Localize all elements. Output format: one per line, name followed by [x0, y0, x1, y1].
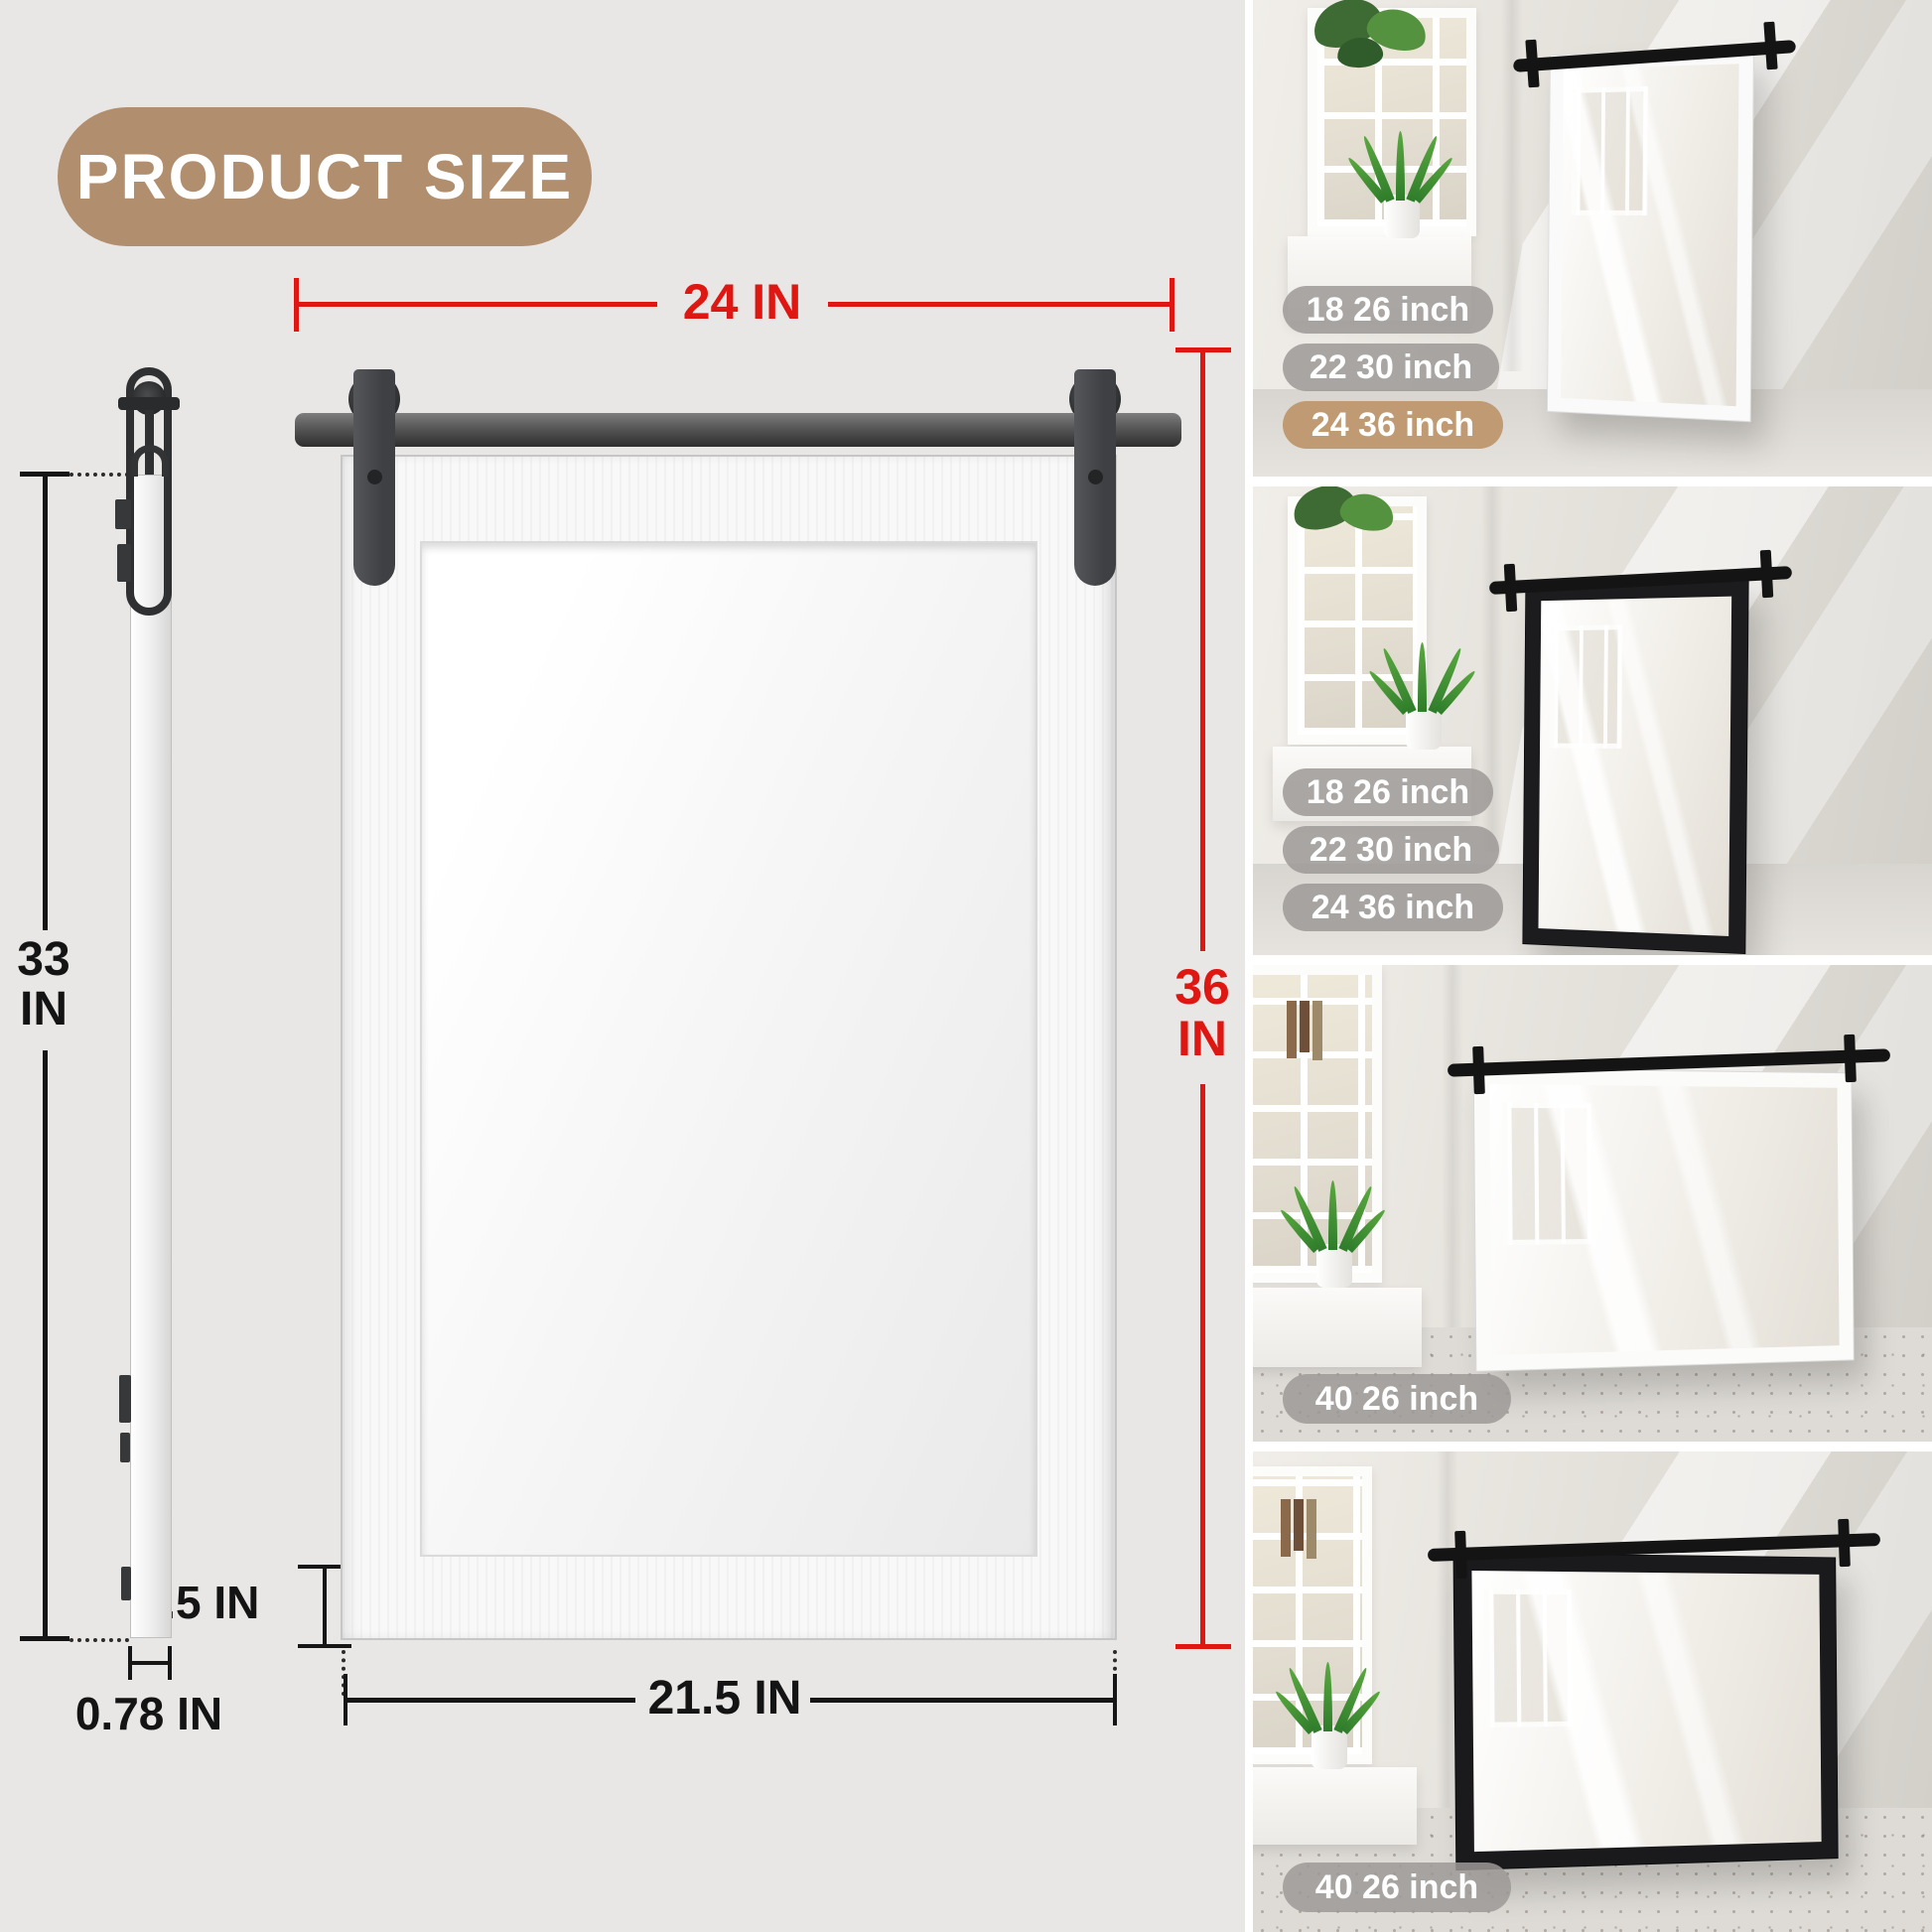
front-barn-door-rail	[295, 413, 1181, 447]
size-badge: 18 26 inch	[1283, 768, 1493, 816]
dim-33in-tick-bottom	[20, 1636, 69, 1641]
product-photo-black-vertical: 18 26 inch 22 30 inch 24 36 inch	[1253, 486, 1932, 955]
size-badge: 40 26 inch	[1283, 1374, 1511, 1424]
front-view-mirror-glass	[420, 541, 1037, 1557]
size-badge: 18 26 inch	[1283, 286, 1493, 334]
photo-shelf-books-icon	[1281, 1499, 1316, 1559]
dim-36in-line-bottom	[1200, 1084, 1205, 1648]
dim-24in-line-left	[296, 302, 657, 307]
dim-33in-leader-top	[69, 473, 129, 477]
dim-side-height-unit: IN	[20, 983, 68, 1035]
strap-screw-icon	[367, 470, 382, 484]
photo-plant-icon	[1312, 1188, 1356, 1288]
photo-plant-icon	[1308, 1670, 1351, 1769]
photo-wall-corner	[1442, 965, 1463, 1336]
size-badge-selected: 24 36 inch	[1283, 401, 1503, 449]
dim-overall-height-unit: IN	[1177, 1011, 1227, 1066]
dim-overall-height-value: 36	[1174, 959, 1230, 1015]
dim-1.5in-tick-bottom	[298, 1644, 351, 1648]
photo-mirror-black-vertical	[1522, 579, 1748, 954]
photo-plant-icon	[1380, 134, 1424, 238]
page-title: PRODUCT SIZE	[58, 107, 592, 246]
side-view-clip-icon	[115, 499, 131, 529]
dim-1.5in-line	[323, 1565, 327, 1648]
dim-24in-line-right	[828, 302, 1172, 307]
photo-shelf-books-icon	[1287, 1001, 1322, 1060]
side-view-clip-icon	[119, 1375, 131, 1423]
dim-0.78in-line	[128, 1661, 172, 1665]
side-view-mirror-profile	[130, 475, 172, 1638]
size-badge: 22 30 inch	[1283, 826, 1499, 874]
photo-column: 18 26 inch 22 30 inch 24 36 inch	[1253, 0, 1932, 1932]
dim-21.5in-line-right	[810, 1698, 1115, 1703]
dim-depth-label: 0.78 IN	[35, 1690, 263, 1737]
dim-33in-line-bottom	[43, 1050, 48, 1638]
product-size-infographic: PRODUCT SIZE 24 IN	[0, 0, 1932, 1932]
dim-33in-line-top	[43, 472, 48, 930]
dim-36in-line-top	[1200, 347, 1205, 951]
strap-screw-icon	[1088, 470, 1103, 484]
dim-bottom-width-label: 21.5 IN	[621, 1674, 829, 1724]
dim-21.5in-line-left	[345, 1698, 635, 1703]
product-photo-white-vertical: 18 26 inch 22 30 inch 24 36 inch	[1253, 0, 1932, 477]
product-photo-black-horizontal: 40 26 inch	[1253, 1451, 1932, 1932]
side-view-clip-icon	[117, 544, 131, 582]
size-diagram: PRODUCT SIZE 24 IN	[0, 0, 1245, 1932]
photo-plant-icon	[1402, 650, 1446, 750]
dim-overall-height-label: 36 IN	[1158, 961, 1247, 1064]
photo-console	[1253, 1767, 1417, 1845]
dim-side-height-value: 33	[17, 933, 69, 986]
product-photo-white-horizontal: 40 26 inch	[1253, 965, 1932, 1442]
photo-wall-corner	[1501, 0, 1523, 371]
side-view-clip-icon	[121, 1567, 131, 1600]
photo-console	[1253, 1288, 1422, 1367]
size-badge: 24 36 inch	[1283, 884, 1503, 931]
size-badge: 22 30 inch	[1283, 344, 1499, 391]
front-view-mirror-frame	[341, 455, 1117, 1640]
dim-side-height-label: 33 IN	[0, 935, 87, 1035]
side-view-axle-icon	[118, 397, 180, 410]
dim-36in-tick-bottom	[1175, 1644, 1231, 1649]
photo-mirror-white-horizontal	[1473, 1068, 1855, 1372]
side-view-clip-icon	[120, 1433, 130, 1462]
dim-overall-width-label: 24 IN	[655, 276, 829, 328]
dim-33in-leader-bottom	[69, 1638, 129, 1642]
page-title-text: PRODUCT SIZE	[76, 140, 573, 213]
side-view-strap-arc-icon	[131, 445, 169, 477]
size-badge: 40 26 inch	[1283, 1863, 1511, 1912]
photo-mirror-white-vertical	[1547, 48, 1754, 422]
photo-mirror-black-horizontal	[1452, 1552, 1838, 1870]
